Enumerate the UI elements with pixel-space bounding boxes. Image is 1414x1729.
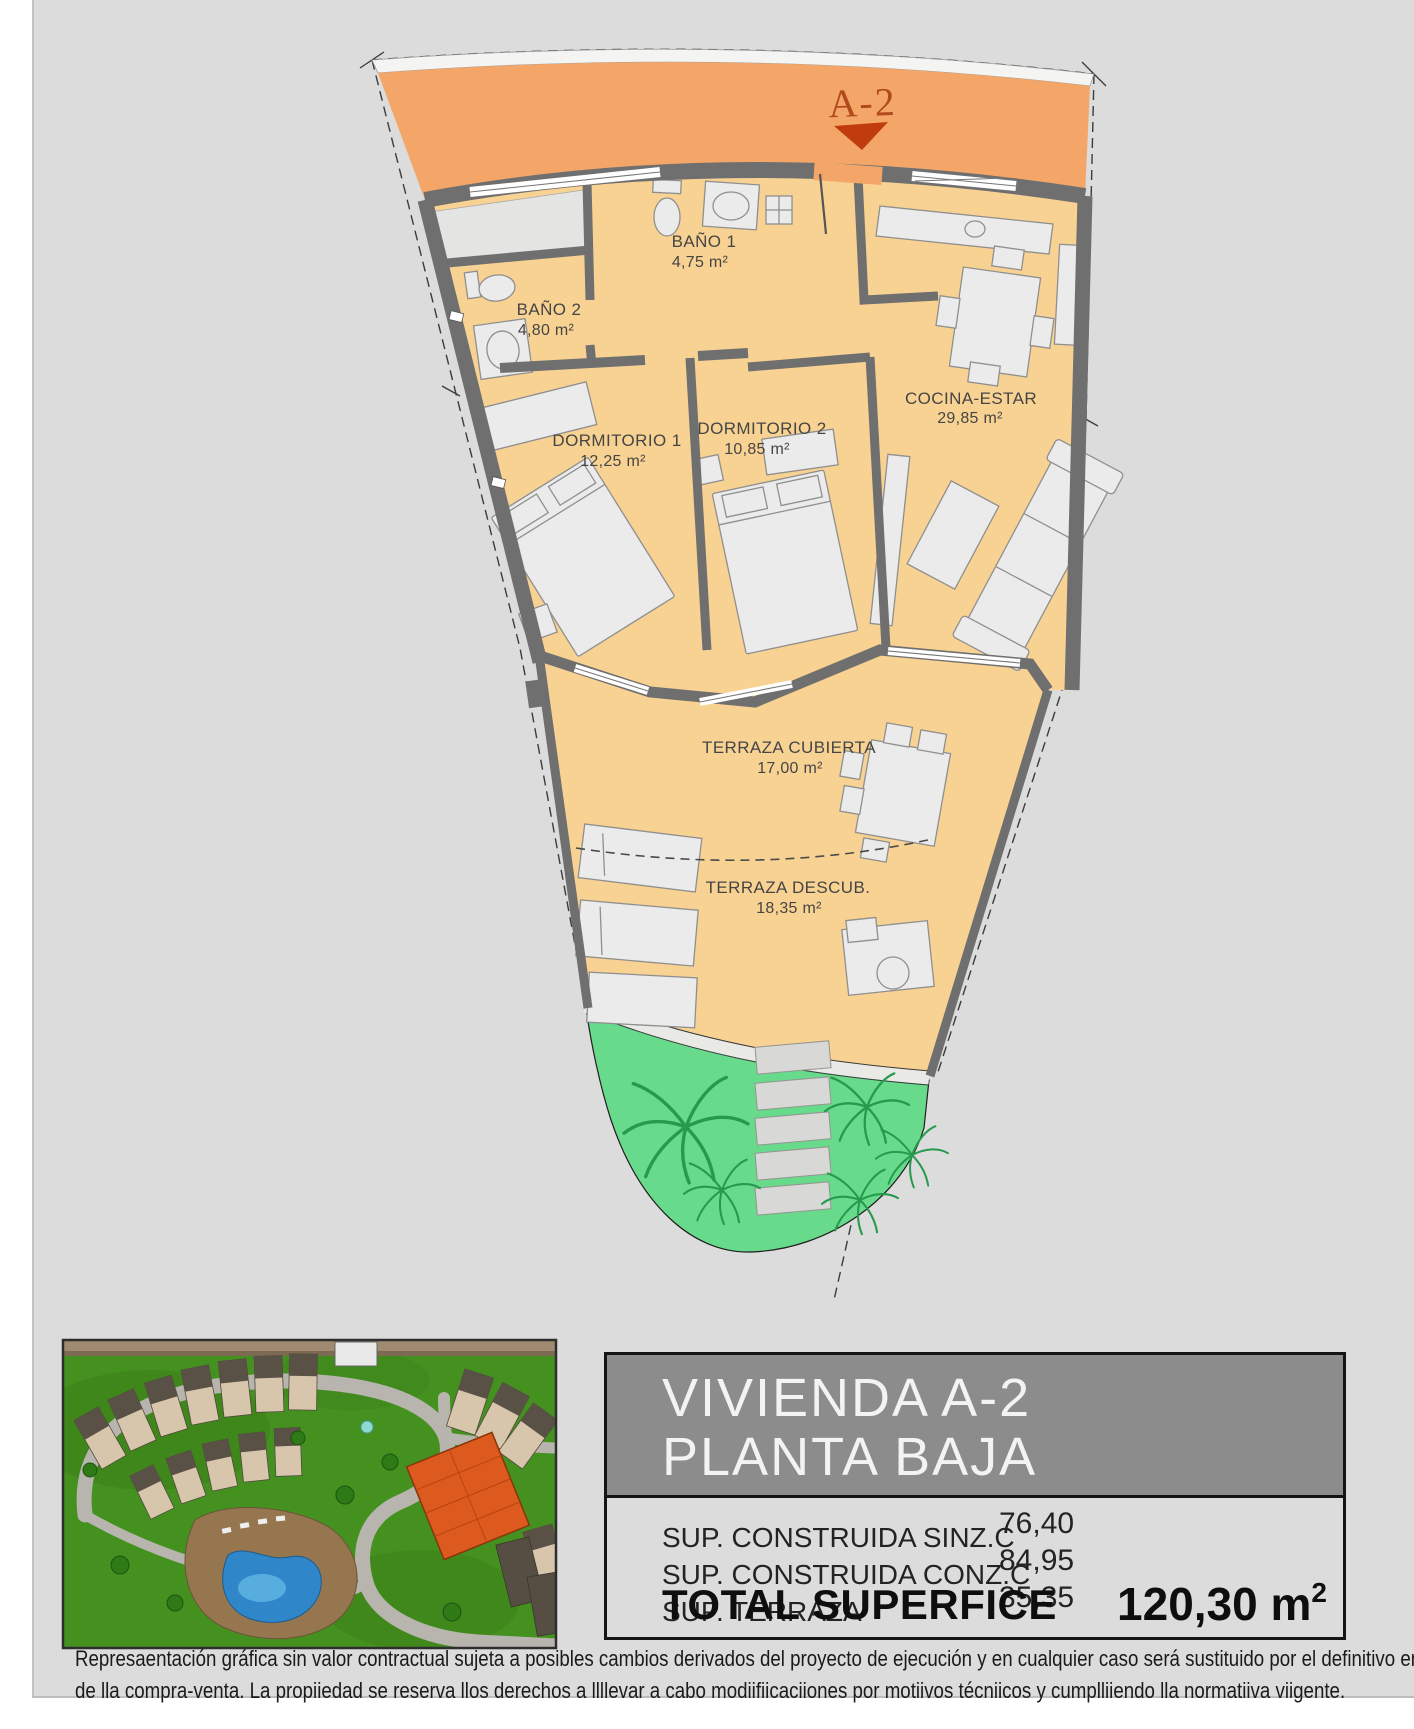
room-label-bano1: BAÑO 1 (672, 232, 737, 251)
total-surface-value: 120,30 m2 (1117, 1577, 1327, 1631)
sun-loungers (576, 824, 702, 1028)
room-area-terraza-cubierta: 17,00 m² (757, 760, 823, 777)
room-label-terraza-cubierta: TERRAZA CUBIERTA (702, 738, 876, 757)
room-label-cocina: COCINA-ESTAR (905, 389, 1037, 408)
surface-row-label: SUP. CONSTRUIDA SINZ.C (662, 1519, 1030, 1556)
disclaimer-line1: Represaentación gráfica sin valor contra… (75, 1643, 1414, 1675)
toilet-icon-bano1 (653, 179, 682, 236)
room-area-bano2: 4,80 m² (518, 322, 575, 339)
hall-cabinet (766, 196, 792, 224)
title-block-header: VIVIENDA A-2 PLANTA BAJA (607, 1355, 1343, 1498)
room-area-dormitorio2: 10,85 m² (724, 441, 790, 458)
room-label-terraza-descubierta: TERRAZA DESCUB. (706, 878, 871, 897)
kitchen-sink-icon (965, 221, 985, 237)
stepping-stones (755, 1041, 831, 1215)
disclaimer-line2: de lla compra-venta. La propiiedad se re… (75, 1675, 1414, 1707)
room-area-cocina: 29,85 m² (937, 410, 1003, 427)
title-block-body: SUP. CONSTRUIDA SINZ.C SUP. CONSTRUIDA C… (607, 1501, 1343, 1637)
room-label-dormitorio2: DORMITORIO 2 (697, 419, 826, 438)
room-label-bano2: BAÑO 2 (517, 300, 582, 319)
title-block: VIVIENDA A-2 PLANTA BAJA SUP. CONSTRUIDA… (604, 1352, 1346, 1640)
surface-row-value: 84,95 (999, 1542, 1074, 1579)
plan-sheet: { "page": { "background": "#dcdcdc", "ma… (0, 0, 1414, 1729)
room-area-terraza-descubierta: 18,35 m² (756, 900, 822, 917)
room-area-dormitorio1: 12,25 m² (580, 453, 646, 470)
room-area-bano1: 4,75 m² (672, 254, 729, 271)
unit-marker-label: A-2 (828, 79, 898, 126)
site-plan-inset (30, 1340, 569, 1650)
sink-icon-bano1 (702, 181, 759, 230)
total-surface-sup: 2 (1311, 1577, 1327, 1608)
room-label-dormitorio1: DORMITORIO 1 (552, 431, 681, 450)
floor-title: PLANTA BAJA (662, 1428, 1343, 1487)
total-surface-label: TOTAL SUPERFICE (662, 1581, 1057, 1629)
disclaimer: Represaentación gráfica sin valor contra… (75, 1643, 1414, 1707)
inset-spa (361, 1421, 373, 1433)
terrace-bbq-table (842, 917, 934, 995)
unit-title: VIVIENDA A-2 (662, 1369, 1343, 1428)
surface-row-value: 76,40 (999, 1505, 1074, 1542)
